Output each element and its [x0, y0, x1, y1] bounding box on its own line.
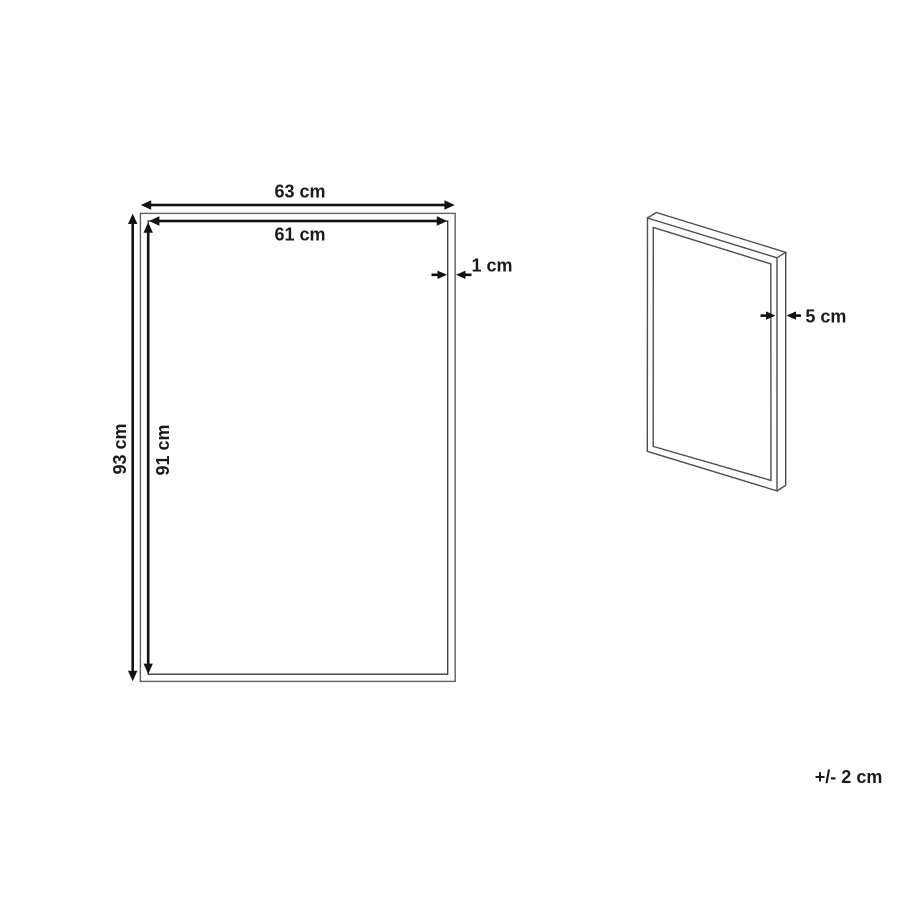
svg-text:5 cm: 5 cm [805, 307, 846, 327]
svg-text:61 cm: 61 cm [274, 224, 325, 244]
svg-text:93 cm: 93 cm [110, 423, 130, 474]
svg-text:91 cm: 91 cm [153, 424, 173, 475]
svg-text:1 cm: 1 cm [472, 256, 513, 276]
svg-text:+/- 2 cm: +/- 2 cm [815, 767, 883, 787]
svg-text:63 cm: 63 cm [274, 182, 325, 202]
